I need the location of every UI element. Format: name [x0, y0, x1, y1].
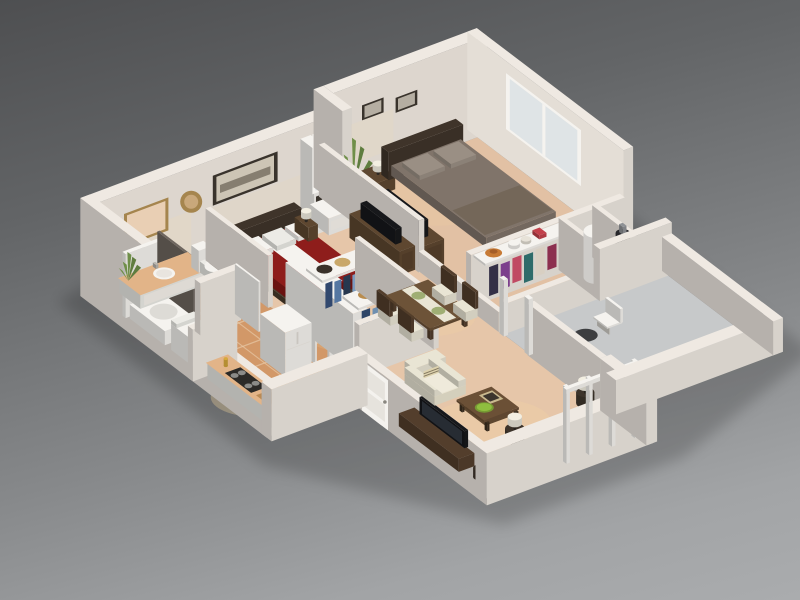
lamp-west-shade-top: [508, 413, 522, 421]
living-window-post-1-west: [563, 385, 567, 464]
coffee-table-leg-3-south: [487, 422, 489, 431]
living-window-post-2-west: [586, 377, 590, 456]
patio-door-post-2-west: [525, 296, 529, 355]
closet2-clothes-rack-garment-1: [489, 264, 498, 296]
floorplan-3d-scene: [0, 0, 800, 600]
closet2-clothes-rack-garment-3: [512, 255, 521, 283]
closet-clothes-rack-1-garment-1: [325, 281, 332, 309]
patio-door-post-1-west: [500, 277, 504, 336]
dining-chair-se-back-south: [475, 291, 478, 309]
living-window-post-2-south: [589, 378, 592, 455]
wall-laundry-south-west: [188, 326, 193, 382]
bathroom-door-south: [259, 281, 261, 332]
vanity-sink-bowl: [156, 269, 172, 277]
closet2-clothes-rack-garment-4: [524, 252, 533, 283]
dining-plate-2: [431, 307, 445, 315]
wall-kitchen-south-west: [262, 382, 272, 442]
apartment-floorplan-render: [0, 0, 800, 600]
closet2-hat-top: [490, 249, 498, 253]
stove-burner-3: [244, 384, 252, 389]
dining-plate-1: [411, 292, 425, 300]
wall-living-south-west: [476, 445, 487, 506]
living-window-post-1-south: [567, 387, 570, 464]
fridge-handle: [297, 332, 299, 345]
decor-bowl-limes: [477, 403, 492, 411]
wall-patio-east-south: [773, 318, 783, 356]
oil-bottle-top: [224, 357, 228, 360]
stove-burner-1: [231, 373, 239, 378]
closet2-hatbox-1-top: [508, 239, 520, 245]
wall-plate-decor-center: [184, 195, 198, 209]
closet2-clothes-rack-garment-6: [547, 243, 556, 270]
closet2-hatbox-2-top: [521, 236, 531, 242]
bathtub-basin: [150, 304, 178, 320]
bedroom2-headboard-west: [381, 147, 389, 181]
entry-door-handle: [383, 400, 387, 404]
living-tv-south: [465, 430, 469, 448]
patio-door-post-2-south: [529, 298, 533, 356]
patio-chair-1-legs-south: [609, 328, 610, 335]
dining-chair-ne-back-south: [454, 275, 457, 293]
patio-door-post-1-south: [504, 279, 508, 337]
closet-clothes-rack-1-garment-2: [334, 279, 341, 303]
bedroom2-window-mullion: [542, 104, 545, 157]
bedroom1-tv-south: [396, 227, 402, 244]
wall-bathroom-south-west: [195, 279, 201, 335]
stove-burner-4: [252, 381, 260, 386]
closet-hat-straw: [334, 258, 350, 267]
wall-utility-south-west: [594, 245, 600, 302]
wall-bathroom-east-south: [268, 254, 273, 308]
stove-burner-2: [238, 370, 246, 375]
closet2-clothes-rack-garment-5: [536, 246, 545, 276]
closet-hat-dark: [316, 265, 332, 274]
bedroom1-lamp-east-shade-top: [301, 208, 311, 214]
patio-chair-1-back-south: [620, 308, 623, 323]
